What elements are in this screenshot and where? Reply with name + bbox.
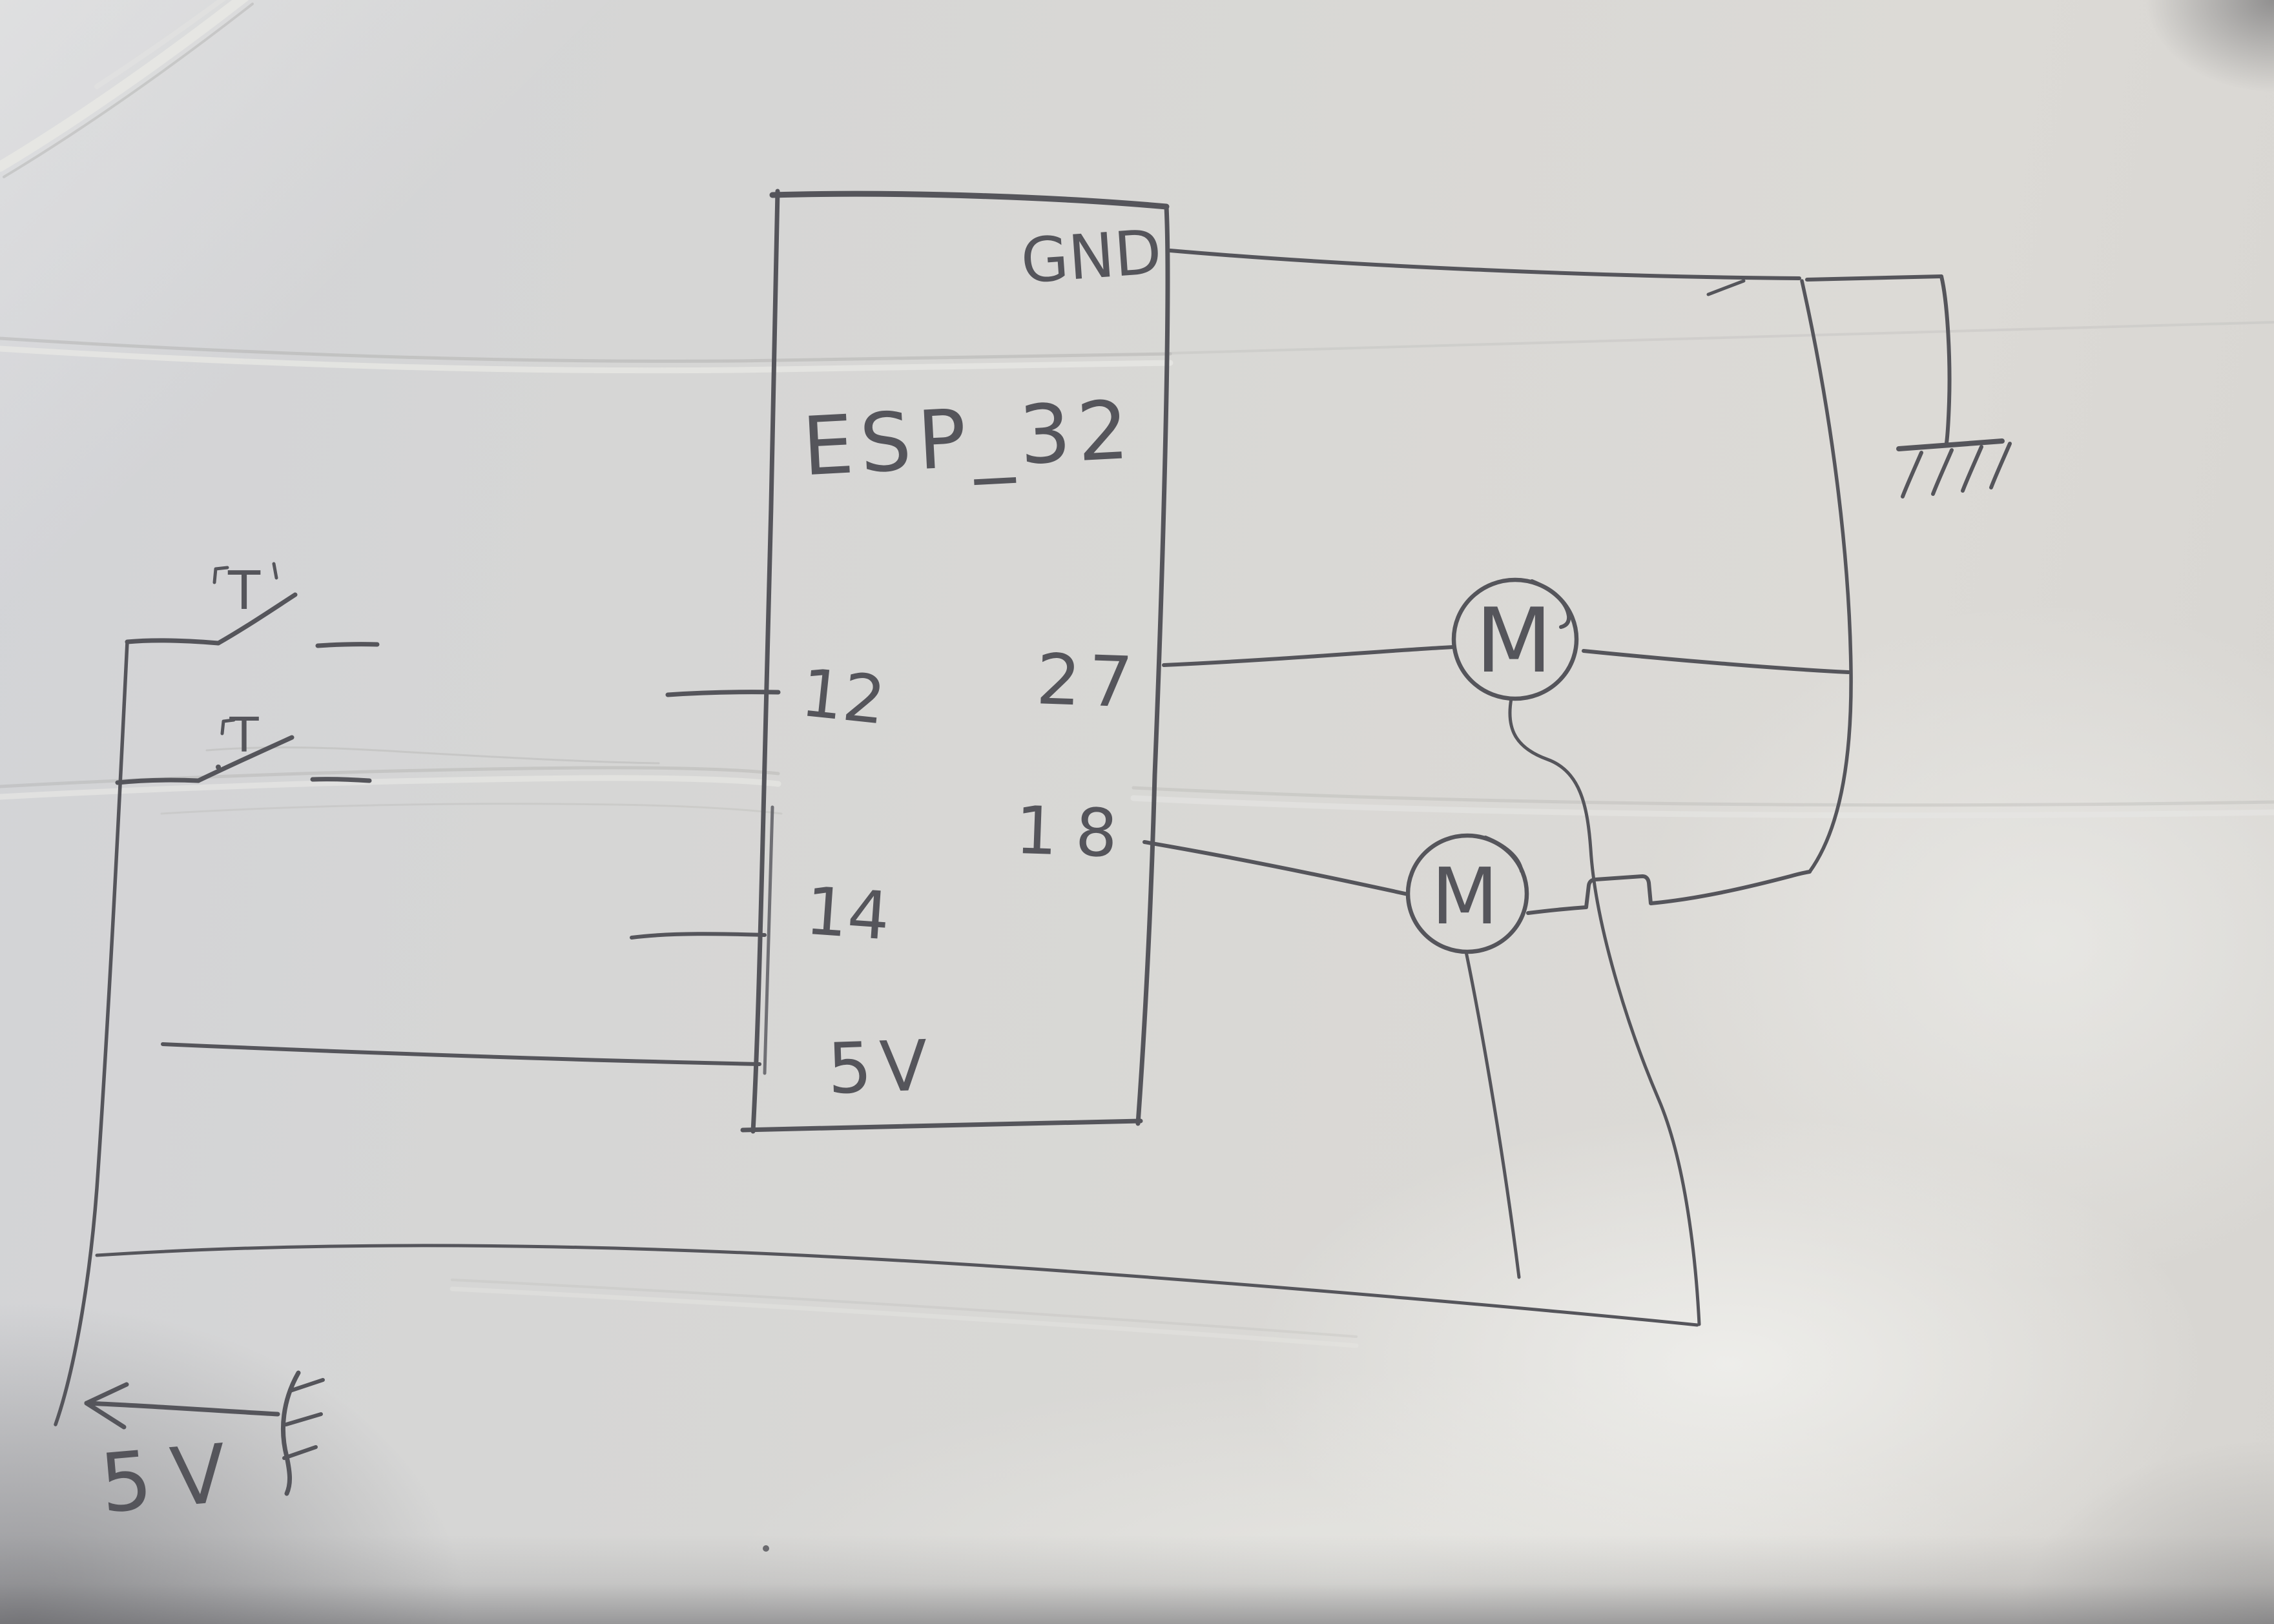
- pin14-stub-wire: [632, 934, 765, 938]
- earth-ground-icon: [1899, 441, 2010, 497]
- arrow-head-upper: [87, 1384, 127, 1403]
- switch1-label-bracket: [214, 568, 227, 582]
- switch-1: [127, 564, 778, 695]
- source-tick-3: [284, 1447, 316, 1458]
- ground-slash-4: [1991, 444, 2010, 488]
- supply-5v-wire: [163, 1044, 760, 1064]
- stray-pencil-dot: [763, 1545, 769, 1552]
- chip-title-label: ESP_32: [800, 384, 1137, 495]
- switch2-pencil-dot: [216, 765, 221, 770]
- pin-18-label: 18: [1014, 792, 1137, 873]
- motor2-right-wire-with-hop: [1528, 872, 1810, 913]
- gnd-wire-junction-tick: [1708, 281, 1744, 294]
- crease-lower-dark: [452, 1280, 1356, 1337]
- arrow-shaft: [87, 1403, 278, 1414]
- switch1-left-wire: [127, 641, 218, 643]
- fold-top-left-2: [97, 0, 234, 87]
- motor-1-label: M: [1475, 589, 1552, 693]
- pin18-to-motor2-wire: [1144, 842, 1408, 894]
- esp32-box-left-edge-overdraw: [765, 807, 772, 1073]
- switch2-label: T: [229, 708, 259, 763]
- esp32-box-top-edge: [772, 194, 1166, 207]
- crease-lower-light: [452, 1289, 1356, 1346]
- fold-top-left-highlight: [0, 0, 249, 167]
- circuit-sketch: GND ESP_32 12 27 14 18 5V T T M M 5V: [0, 0, 2274, 1624]
- motor2-bottom-wire: [1466, 952, 1519, 1277]
- switch2-right-stub: [313, 779, 369, 781]
- pin27-to-motor1-wire: [1164, 647, 1453, 665]
- crease-mid-right-light: [1133, 798, 2274, 816]
- pin-gnd-label: GND: [1018, 217, 1164, 298]
- motor1-bottom-wire: [1510, 699, 1699, 1324]
- ground-bar: [1899, 441, 2002, 449]
- esp32-box-left-edge: [753, 191, 778, 1131]
- switch1-label-tick: [274, 564, 276, 578]
- paper-sheet: GND ESP_32 12 27 14 18 5V T T M M 5V: [0, 0, 2274, 1624]
- crease-upper-right: [1170, 322, 2274, 353]
- source-tick-2: [286, 1414, 321, 1424]
- gnd-net: [1170, 251, 2010, 872]
- switch-2: [118, 720, 765, 938]
- emf-source-icon: [283, 1373, 323, 1494]
- esp32-box-bottom-edge: [743, 1121, 1141, 1130]
- left-bus-wire: [56, 642, 127, 1424]
- motor-2-label: M: [1431, 852, 1498, 942]
- crease-squiggle-1: [207, 748, 659, 763]
- gnd-branch-down-wire: [1802, 281, 1851, 872]
- ground-slash-2: [1933, 450, 1952, 494]
- switch1-label: T: [227, 560, 261, 622]
- pin-14-label: 14: [803, 873, 893, 956]
- switch1-right-stub: [318, 644, 377, 646]
- switch2-left-wire: [118, 780, 198, 783]
- pin-27-label: 27: [1035, 639, 1142, 724]
- gnd-drop-wire: [1941, 276, 1950, 443]
- gnd-wire-left-segment: [1170, 251, 1799, 278]
- supply-5v-label: 5V: [97, 1425, 250, 1531]
- pin-12-label: 12: [798, 655, 889, 740]
- gnd-wire-right-segment: [1807, 276, 1941, 280]
- pin12-stub-wire: [668, 692, 778, 695]
- crease-squiggle-2: [161, 804, 781, 814]
- motor1-to-gnd-wire: [1584, 651, 1848, 672]
- pin-5v-label: 5V: [826, 1025, 936, 1110]
- ground-slash-1: [1903, 453, 1921, 497]
- fold-top-left-shadow: [4, 4, 253, 177]
- ground-slash-3: [1963, 447, 1981, 491]
